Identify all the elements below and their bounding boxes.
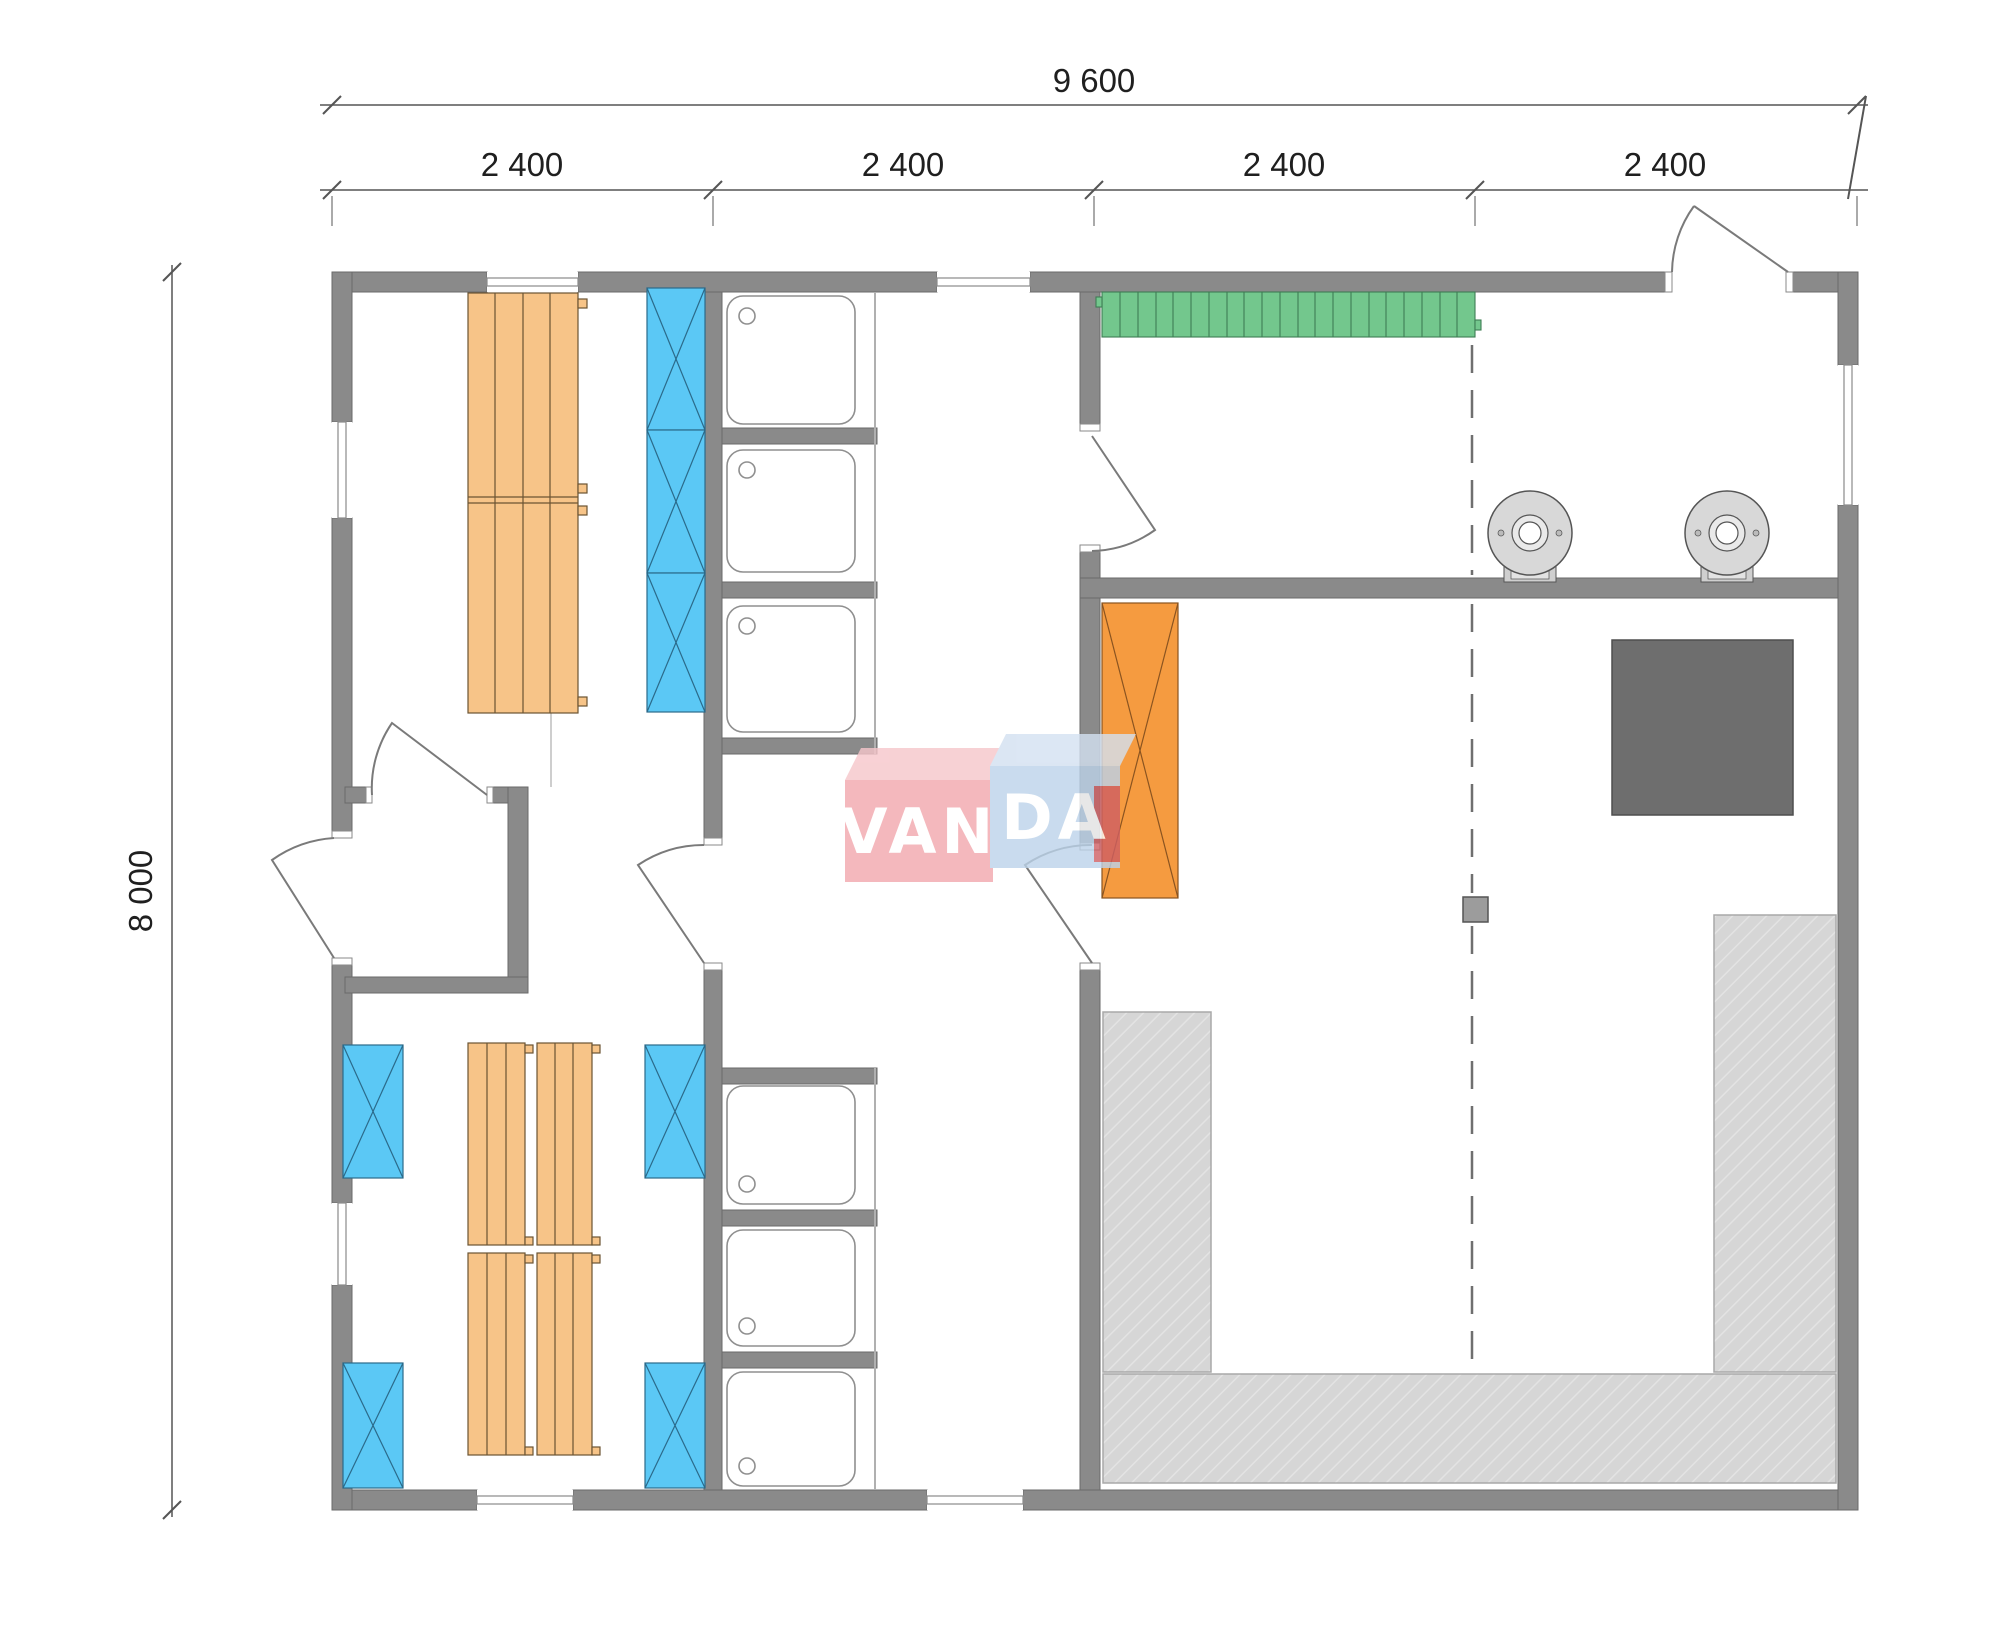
- wall-segment: [1023, 1490, 1857, 1510]
- locker-blue: [647, 573, 705, 712]
- dim-label-module-3: 2 400: [1243, 146, 1326, 183]
- shower-drain: [739, 308, 755, 324]
- locker-blue: [647, 430, 705, 573]
- entrance-door-left: [272, 838, 334, 958]
- bench-tab: [578, 299, 587, 308]
- shower-tray: [727, 450, 855, 572]
- boiler: [1685, 491, 1769, 582]
- shower-partition-stub: [722, 738, 877, 754]
- door-corridor-to-technical-room: [1092, 436, 1155, 551]
- green-bench-tab: [1096, 297, 1102, 307]
- window-frame: [477, 1496, 573, 1504]
- bench-tab: [578, 484, 587, 493]
- support-post: [1463, 897, 1488, 922]
- watermark-logo: VAN DA: [840, 734, 1136, 882]
- stove: [1612, 640, 1793, 815]
- locker-blue: [343, 1045, 403, 1178]
- bench-body: [537, 1043, 592, 1245]
- window: [1838, 365, 1858, 505]
- dim-label-overall-width: 9 600: [1053, 62, 1136, 99]
- bench-tab: [525, 1237, 533, 1245]
- shower-tray: [727, 606, 855, 732]
- vestibule-wall: [345, 977, 528, 993]
- wood-benches: [468, 293, 600, 1455]
- shower-partition-stub: [722, 1352, 877, 1368]
- bench-body: [537, 1253, 592, 1455]
- door-jamb: [704, 838, 722, 845]
- door-jamb: [332, 831, 352, 838]
- wall-segment: [578, 272, 937, 292]
- window: [927, 1490, 1023, 1510]
- platform-left: [1103, 1012, 1211, 1372]
- bench-tab: [525, 1255, 533, 1263]
- wall-segment-interior: [704, 292, 722, 838]
- door-jamb: [1080, 424, 1100, 431]
- shower-tray: [727, 1086, 855, 1204]
- green-bench: [1096, 292, 1481, 337]
- locker-blue: [645, 1045, 705, 1178]
- wall-segment: [332, 272, 352, 422]
- locker-blue: [647, 288, 705, 430]
- shower-drain: [739, 618, 755, 634]
- window: [487, 272, 578, 292]
- bench-tab: [592, 1255, 600, 1263]
- locker-blue: [645, 1363, 705, 1488]
- bench-tab: [525, 1447, 533, 1455]
- bench-tab: [578, 506, 587, 515]
- wall-segment-interior: [1080, 292, 1100, 424]
- wall-segment: [332, 1490, 477, 1510]
- bench-bottom-room: [468, 1043, 600, 1455]
- shower-partition-stub: [722, 428, 877, 444]
- boilers: [1488, 491, 1769, 582]
- watermark-pink-top-face: [845, 748, 1009, 780]
- boiler: [1488, 491, 1572, 582]
- entrance-door-top-right: [1672, 206, 1788, 272]
- dim-label-overall-height: 8 000: [122, 850, 159, 933]
- window: [477, 1490, 573, 1510]
- bench-body: [468, 1043, 525, 1245]
- hatched-platforms: [1103, 915, 1836, 1483]
- wall-segment-interior: [1080, 970, 1100, 1490]
- watermark-text-left: VAN: [840, 795, 999, 868]
- shower-drain: [739, 1458, 755, 1474]
- wall-segment: [1838, 505, 1858, 1510]
- wall-segment: [573, 1490, 927, 1510]
- shower-drain: [739, 462, 755, 478]
- door-jamb: [487, 787, 493, 803]
- bench-tab: [592, 1045, 600, 1053]
- shower-trays: [727, 296, 855, 1486]
- shower-partition-stub: [722, 1068, 877, 1084]
- watermark-text-right: DA: [1001, 781, 1110, 854]
- locker-blue: [343, 1363, 403, 1488]
- window-frame: [927, 1496, 1023, 1504]
- dim-label-module-2: 2 400: [862, 146, 945, 183]
- dim-label-module-1: 2 400: [481, 146, 564, 183]
- dim-label-module-4: 2 400: [1624, 146, 1707, 183]
- platform-bottom: [1103, 1374, 1836, 1483]
- shower-drain: [739, 1176, 755, 1192]
- shower-partition-stub: [722, 1210, 877, 1226]
- wall-segment: [332, 272, 487, 292]
- door-jamb: [1665, 272, 1672, 292]
- platform-right: [1714, 915, 1836, 1372]
- bench-tab: [592, 1447, 600, 1455]
- door-jamb: [1080, 963, 1100, 970]
- wall-segment: [332, 518, 352, 831]
- wall-segment: [1030, 272, 1665, 292]
- bench-tab: [525, 1045, 533, 1053]
- green-bench-tab: [1475, 320, 1481, 330]
- floor-plan-canvas: 9 600 2 400 2 400 2 400 2 400 8 000: [0, 0, 2000, 1631]
- window-frame: [1844, 365, 1852, 505]
- window-frame: [338, 422, 346, 518]
- vestibule-wall: [508, 787, 528, 993]
- bench-tab: [592, 1237, 600, 1245]
- vestibule-door: [372, 723, 487, 795]
- bench-top-room: [468, 293, 587, 713]
- window-frame: [338, 1203, 346, 1285]
- shower-drain: [739, 1318, 755, 1334]
- vestibule-wall: [345, 787, 366, 803]
- wall-segment-interior: [704, 970, 722, 1490]
- bench-body: [468, 1253, 525, 1455]
- watermark-blue-top-face: [990, 734, 1136, 766]
- green-bench-body: [1102, 292, 1475, 337]
- door-hall-to-shower-area: [638, 845, 704, 963]
- shower-partition-stub: [722, 582, 877, 598]
- shower-tray: [727, 1230, 855, 1346]
- window: [332, 1203, 352, 1285]
- bench-tab: [578, 697, 587, 706]
- window: [937, 272, 1030, 292]
- shower-tray: [727, 296, 855, 424]
- door-jamb: [332, 958, 352, 965]
- shower-tray: [727, 1372, 855, 1486]
- window-frame: [937, 278, 1030, 286]
- door-jamb: [1786, 272, 1793, 292]
- window: [332, 422, 352, 518]
- wall-segment: [1838, 272, 1858, 365]
- floor-plan-page: 9 600 2 400 2 400 2 400 2 400 8 000: [0, 0, 2000, 1631]
- window-frame: [487, 278, 578, 286]
- door-jamb: [704, 963, 722, 970]
